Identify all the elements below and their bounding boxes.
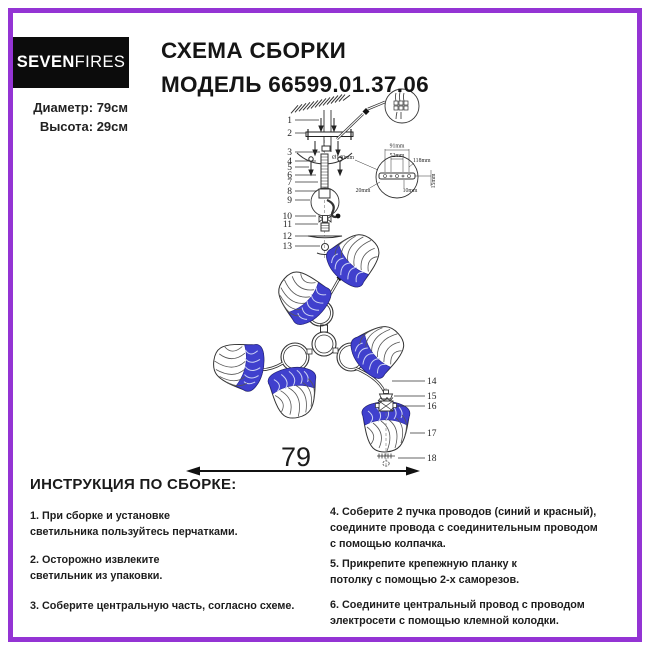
hook-detail-circle [311,188,340,218]
instruction-step-2: 2. Осторожно извлеките светильник из упа… [30,552,330,584]
width-value: 79 [281,442,311,472]
brand-name-bold: SEVEN [17,53,75,72]
instruction-step-3: 3. Соберите центральную часть, согласно … [30,598,330,614]
callout-9: 9 [287,196,292,206]
dim-15mm: 15mm [431,173,437,188]
bracket-dimension-circle: 91mm 52mm 118mm Ø140mm 20mm 10mm 15mm [332,144,437,199]
dim-118mm: 118mm [413,158,431,164]
callout-14: 14 [427,377,437,387]
title-line2: МОДЕЛЬ 66599.01.37.06 [161,68,631,102]
callout-18: 18 [427,454,437,464]
lamp-shades [209,224,413,452]
dim-91mm: 91mm [390,144,405,150]
title-line1: СХЕМА СБОРКИ [161,34,631,68]
shade-bottom-center [267,365,321,421]
shade-far-left [209,337,268,394]
callout-numbers-left: 1 2 3 4 5 6 7 8 9 10 11 12 13 [283,116,293,252]
dim-52mm: 52mm [390,153,405,159]
spec-height: Высота: 29см [8,118,128,137]
callout-13: 13 [283,242,293,252]
shade-right [345,315,414,383]
dim-20mm: 20mm [356,188,371,194]
fixture-specs: Диаметр: 79см Высота: 29см [8,99,128,137]
instruction-step-4: 4. Соберите 2 пучка проводов (синий и кр… [330,504,642,553]
callout-11: 11 [283,220,292,230]
callout-17: 17 [427,429,437,439]
instruction-step-1: 1. При сборке и установке светильника по… [30,508,330,540]
instruction-step-5: 5. Прикрепите крепежную планку к потолку… [330,556,642,588]
dim-10mm: 10mm [403,188,418,194]
callout-15: 15 [427,392,437,402]
instruction-step-6: 6. Соедините центральный провод с провод… [330,597,642,629]
page-title: СХЕМА СБОРКИ МОДЕЛЬ 66599.01.37.06 [161,34,631,102]
shade-upper-left [268,262,337,331]
brand-logo: SEVENFIRES [13,37,129,88]
spec-diameter: Диаметр: 79см [8,99,128,118]
callout-2: 2 [287,129,292,139]
callout-12: 12 [283,232,293,242]
supply-wire [337,102,385,139]
callout-1: 1 [287,116,292,126]
dim-diameter: Ø140mm [332,155,354,161]
instructions-heading: ИНСТРУКЦИЯ ПО СБОРКЕ: [30,476,237,493]
shade-top-right [320,224,389,293]
brand-name-light: FIRES [75,53,126,72]
callout-16: 16 [427,402,437,412]
threaded-pipe [321,154,328,191]
callout-numbers-right: 14 15 16 17 18 [427,377,437,464]
